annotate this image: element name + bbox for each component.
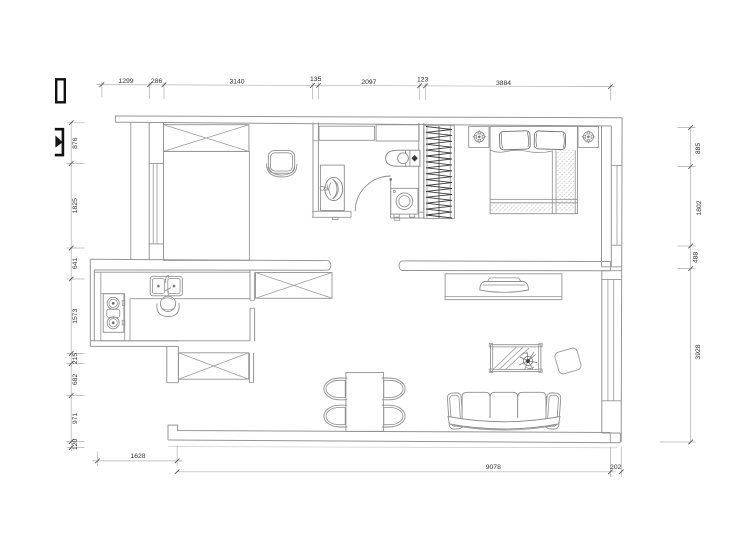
svg-text:1573: 1573 [72,308,79,323]
svg-text:876: 876 [72,137,79,149]
svg-text:1825: 1825 [72,198,79,213]
svg-text:488: 488 [693,252,700,264]
svg-text:3928: 3928 [695,344,702,359]
svg-text:215: 215 [72,353,79,365]
svg-text:1628: 1628 [130,453,145,460]
svg-text:286: 286 [151,78,163,85]
svg-text:123: 123 [417,76,429,83]
svg-text:971: 971 [72,413,79,425]
svg-text:1802: 1802 [696,200,703,215]
svg-text:202: 202 [610,464,622,471]
svg-text:682: 682 [72,374,79,386]
svg-text:9078: 9078 [486,464,501,471]
svg-text:2097: 2097 [361,79,376,86]
svg-text:885: 885 [695,143,702,155]
svg-text:1299: 1299 [118,78,133,85]
svg-text:135: 135 [310,76,322,83]
svg-text:120: 120 [72,439,79,451]
svg-text:641: 641 [72,258,79,270]
svg-text:3140: 3140 [229,78,244,85]
svg-text:3884: 3884 [496,80,511,87]
